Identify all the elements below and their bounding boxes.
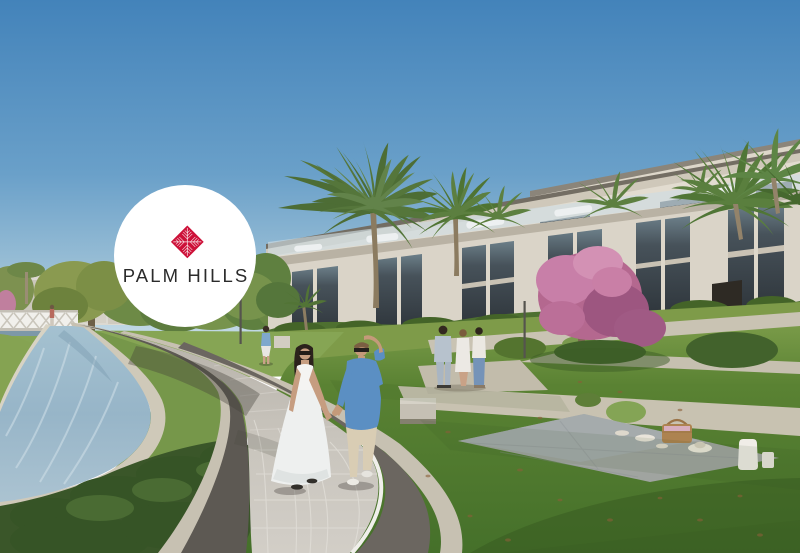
svg-text:PALM HILLS: PALM HILLS	[123, 265, 250, 286]
